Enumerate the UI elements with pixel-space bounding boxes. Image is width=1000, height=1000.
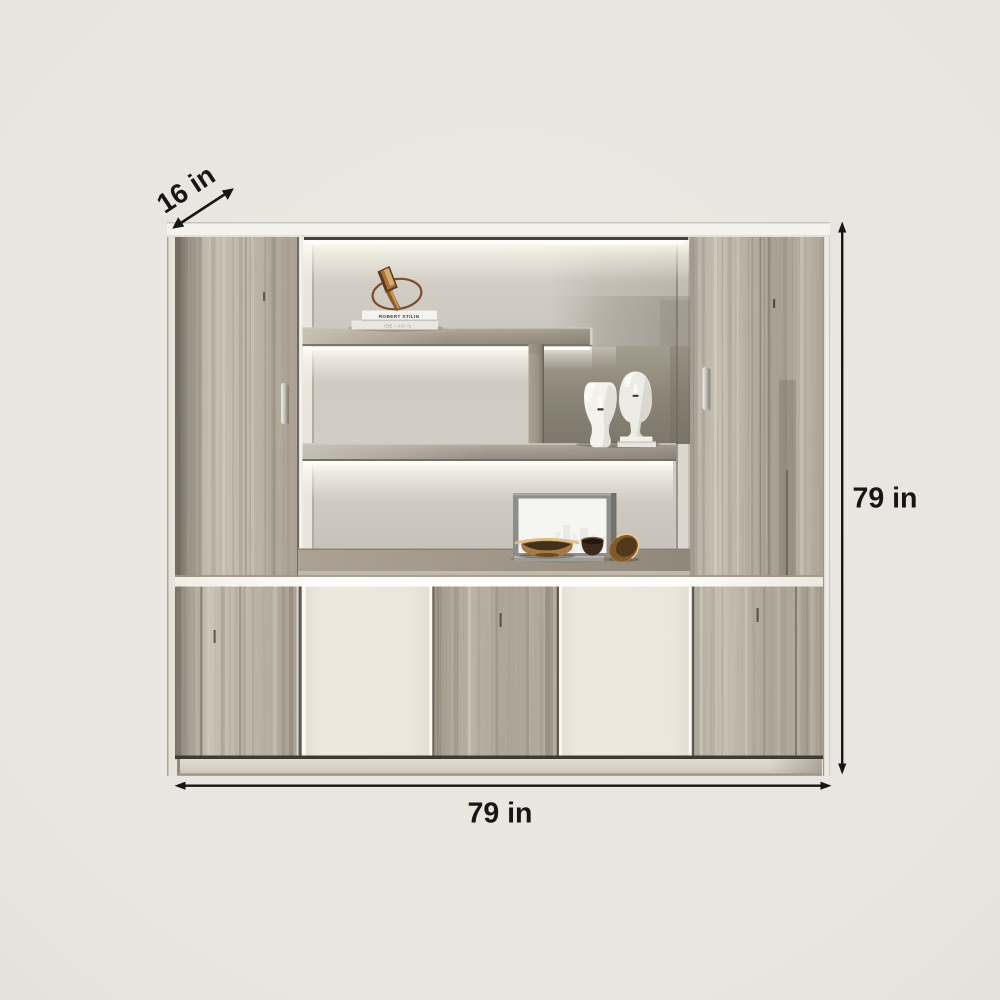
svg-text:IDE I AS/ /s: IDE I AS/ /s bbox=[384, 324, 411, 329]
svg-text:79 in: 79 in bbox=[468, 798, 533, 830]
svg-text:79 in: 79 in bbox=[853, 483, 918, 515]
svg-text:ROBERT STILIN: ROBERT STILIN bbox=[379, 314, 420, 320]
